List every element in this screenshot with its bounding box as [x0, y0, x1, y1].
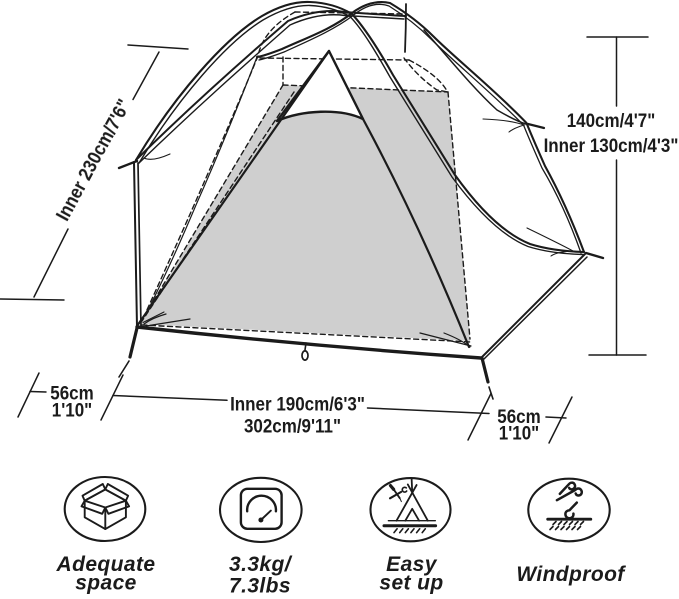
svg-text:space: space [75, 572, 137, 595]
svg-text:Inner 130cm/4'3": Inner 130cm/4'3" [544, 135, 679, 156]
svg-text:7.3lbs: 7.3lbs [229, 575, 291, 598]
svg-text:302cm/9'11": 302cm/9'11" [244, 416, 341, 437]
svg-text:3.3kg/: 3.3kg/ [229, 553, 293, 576]
svg-text:1'10": 1'10" [499, 423, 539, 444]
svg-text:140cm/4'7": 140cm/4'7" [567, 110, 656, 131]
svg-text:Inner 190cm/6'3": Inner 190cm/6'3" [230, 394, 365, 415]
svg-text:Windproof: Windproof [516, 563, 626, 586]
svg-text:set up: set up [379, 572, 443, 595]
svg-text:1'10": 1'10" [52, 400, 92, 421]
